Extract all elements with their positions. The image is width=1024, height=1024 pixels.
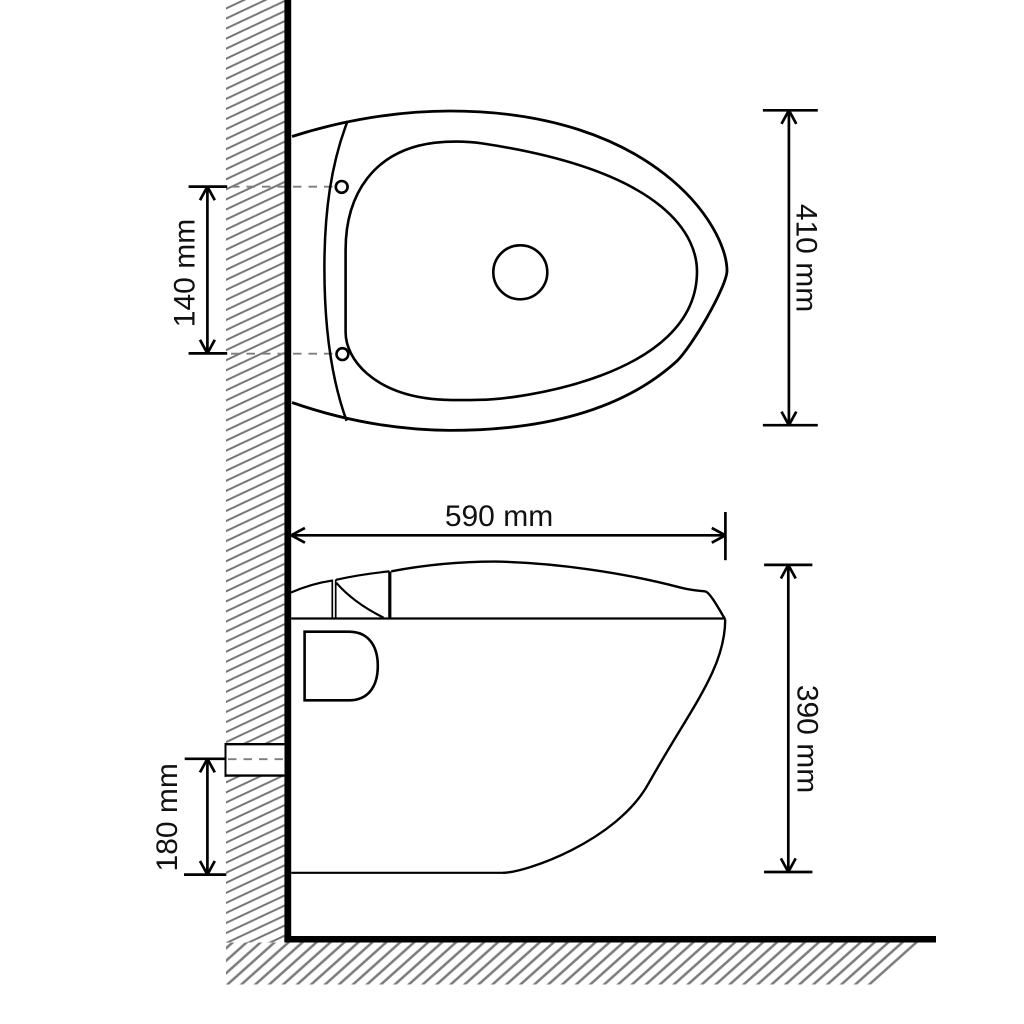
svg-text:180 mm: 180 mm [151,763,184,871]
svg-text:590 mm: 590 mm [445,500,553,533]
svg-text:390 mm: 390 mm [791,685,824,793]
svg-text:140 mm: 140 mm [169,219,202,327]
svg-text:410 mm: 410 mm [790,204,823,312]
